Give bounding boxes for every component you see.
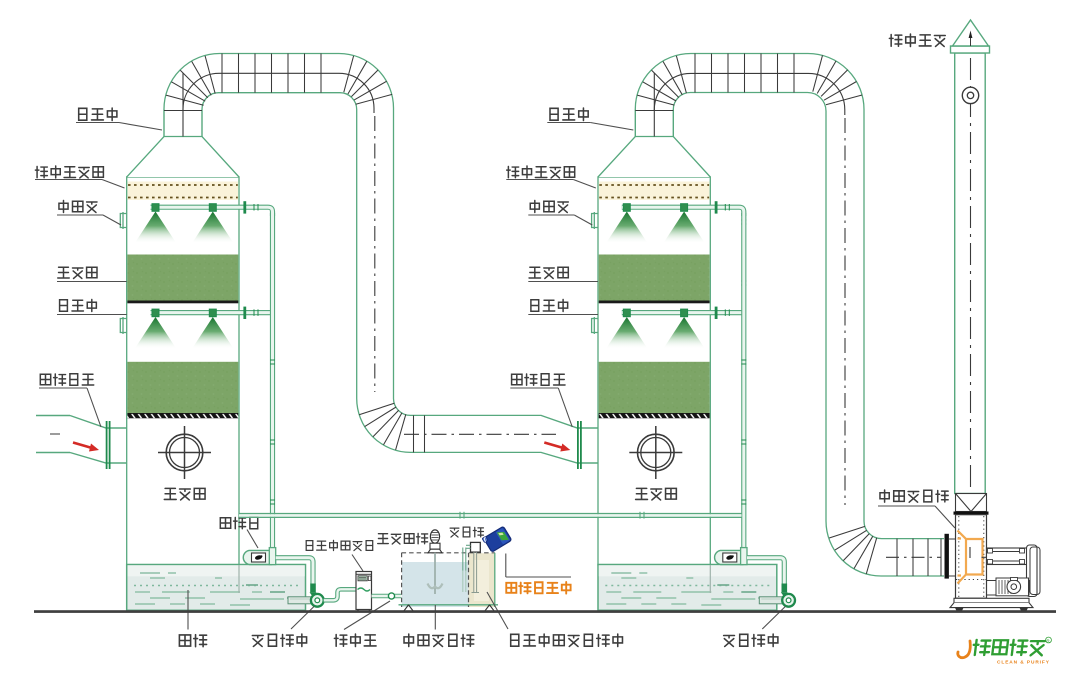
svg-text:CLEAN & PURIFY: CLEAN & PURIFY bbox=[997, 659, 1050, 665]
